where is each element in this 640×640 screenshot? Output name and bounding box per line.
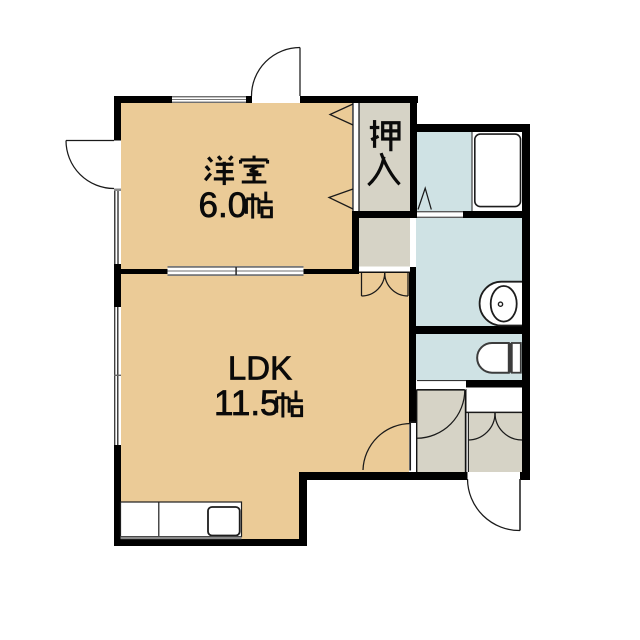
svg-text:LDK: LDK	[228, 350, 292, 387]
svg-text:6.0: 6.0	[199, 186, 248, 225]
svg-text:11.5: 11.5	[214, 384, 280, 423]
